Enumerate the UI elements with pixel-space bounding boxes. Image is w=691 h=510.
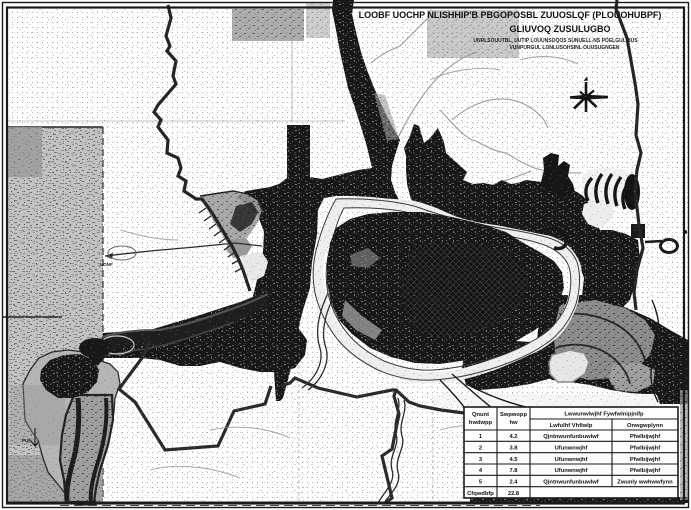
svg-text:Onwgwplynn: Onwgwplynn [627,423,664,429]
svg-text:Pfwlbijwjhf: Pfwlbijwjhf [630,457,660,463]
svg-text:Pfwlbijwjhf: Pfwlbijwjhf [630,468,660,474]
svg-text:Qjntnwunfunbuwlwf: Qjntnwunfunbuwlwf [543,480,598,486]
svg-text:hwdwpp: hwdwpp [469,420,493,426]
svg-text:22.8: 22.8 [508,491,520,497]
svg-text:Cfqwdbfp: Cfqwdbfp [467,491,494,497]
svg-text:hw: hw [509,420,518,426]
svg-text:Ufunwnwjhf: Ufunwnwjhf [555,446,588,452]
svg-text:Pfwlbijwjhf: Pfwlbijwjhf [630,446,660,452]
svg-text:Ufunwnwjhf: Ufunwnwjhf [555,457,588,463]
svg-text:Lwwunwlwjhf Fywfwlnipjnifp: Lwwunwlwjhf Fywfwlnipjnifp [564,412,644,418]
svg-text:Lwfulhf Vhfiwlp: Lwfulhf Vhfiwlp [550,423,593,429]
svg-text:3.8: 3.8 [509,446,518,452]
svg-text:2.4: 2.4 [509,480,518,486]
svg-text:Zwunly wwhwwfynn: Zwunly wwhwwfynn [617,480,673,486]
svg-text:2: 2 [479,446,482,452]
svg-text:4.5: 4.5 [509,457,518,463]
svg-text:4.2: 4.2 [509,434,517,440]
svg-text:Ufunwnwjhf: Ufunwnwjhf [555,468,588,474]
svg-text:Pfwlbijwjhf: Pfwlbijwjhf [630,434,660,440]
svg-text:Qjntnwunfunbuwlwf: Qjntnwunfunbuwlwf [543,434,598,440]
svg-text:7.8: 7.8 [509,468,518,474]
svg-text:Qnunt: Qnunt [472,412,489,418]
svg-text:Swpwopp: Swpwopp [500,412,528,418]
